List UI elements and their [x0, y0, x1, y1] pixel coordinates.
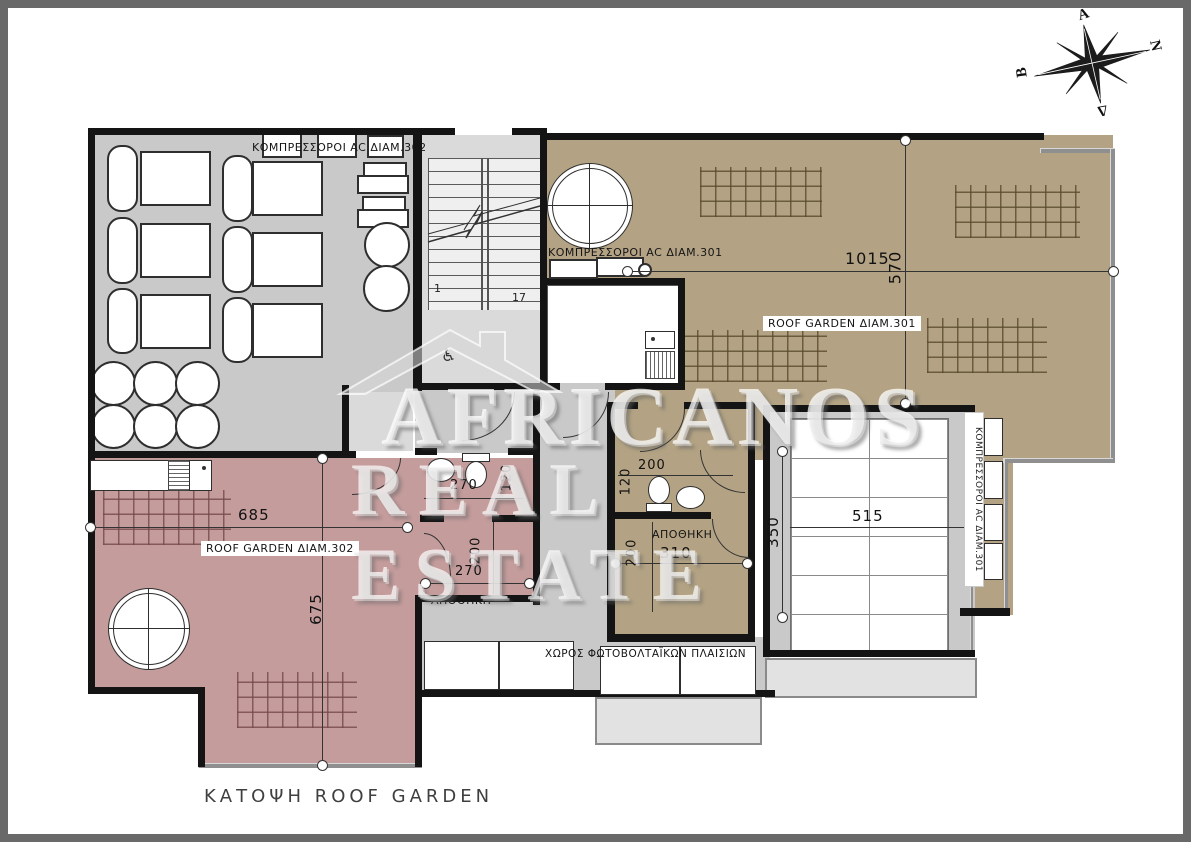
table: [252, 232, 323, 287]
sink: [676, 486, 705, 509]
label-roof-garden-301: ROOF GARDEN ΔΙΑΜ.301: [763, 316, 921, 331]
dim-line: [424, 583, 530, 584]
pergola-grid: [103, 490, 231, 545]
wall-segment: [415, 448, 437, 455]
ledge: [765, 658, 977, 698]
round-table: [133, 404, 178, 449]
dim-line: [89, 527, 408, 528]
dim-wc302-width: 270: [450, 478, 478, 493]
wall-segment: [540, 128, 547, 390]
terrace-corner-notch: [349, 392, 413, 451]
ladder: [645, 351, 675, 379]
tank: [364, 222, 410, 268]
dim-line: [790, 527, 970, 528]
dim-marker: [420, 578, 431, 589]
table: [252, 303, 323, 358]
parapet-edge: [198, 763, 422, 768]
wall-segment: [420, 515, 444, 522]
parapet-edge: [1003, 458, 1113, 463]
dim-marker: [85, 522, 96, 533]
round-table: [175, 404, 220, 449]
dim-marker: [317, 453, 328, 464]
door-opening: [455, 128, 512, 135]
lounger: [222, 297, 253, 363]
pergola-grid: [237, 672, 357, 728]
kitchen-sink: [189, 460, 212, 491]
dim-wc301-depth: 120: [618, 468, 633, 496]
wall-segment: [342, 385, 349, 458]
parapet-edge: [1004, 458, 1008, 613]
compass-south-letter: Ν: [1145, 38, 1164, 52]
counter: [90, 460, 170, 491]
wall-segment: [88, 128, 95, 458]
dim-line: [782, 450, 783, 617]
floor-plan-canvas: 1 17 ♿: [0, 0, 1191, 842]
ac-unit: [596, 257, 644, 277]
wall-segment: [413, 128, 422, 391]
door-opening: [560, 383, 605, 390]
pipe: [638, 263, 652, 277]
lounger: [107, 145, 138, 212]
stair-start-number: 1: [434, 282, 441, 295]
dim-line: [628, 271, 1115, 272]
dim-line: [493, 522, 494, 594]
table: [140, 151, 211, 206]
label-photovoltaic: ΧΩΡΟΣ ΦΩΤΟΒΟΛΤΑΪΚΩΝ ΠΛΑΙΣΙΩΝ: [545, 648, 746, 660]
wall-segment: [678, 278, 685, 390]
wall-segment: [545, 133, 1044, 140]
dim-marker: [402, 522, 413, 533]
wall-segment: [415, 598, 422, 767]
wheelchair-icon: ♿: [441, 346, 456, 366]
skylight-cross: [589, 163, 590, 249]
wall-segment: [88, 458, 95, 694]
skylight-302-inner: [113, 593, 185, 665]
compass-star-icon: [1021, 7, 1164, 124]
pergola-grid: [682, 330, 827, 382]
dim-panels-width: 515: [852, 507, 884, 525]
dim-marker: [900, 135, 911, 146]
dim-wc302-depth: 120: [499, 464, 514, 492]
pergola-grid: [927, 318, 1047, 373]
parapet-edge: [1110, 148, 1115, 463]
dim-rg302-depth: 675: [307, 593, 325, 625]
ac-unit: [984, 504, 1003, 541]
solar-panel-grid: [790, 418, 949, 655]
ac-unit: [357, 175, 409, 194]
stair-landing: [422, 310, 540, 383]
wall-segment: [88, 451, 356, 458]
stair-end-number: 17: [512, 291, 526, 304]
dim-line: [905, 140, 906, 405]
dim-line: [618, 475, 733, 476]
dim-storage302-width: 270: [455, 564, 483, 579]
ac-unit: [984, 418, 1003, 456]
label-compressors-302: ΚΟΜΠΡΕΣΣΟΡΟΙ AC ΔΙΑΜ.302: [252, 141, 427, 154]
wall-segment: [415, 383, 685, 390]
round-table: [133, 361, 178, 406]
machine-box: [645, 331, 675, 349]
dim-storage301-width: 310: [660, 544, 692, 562]
toilet-tank: [646, 503, 672, 512]
skylight-301-inner: [552, 168, 628, 244]
compass-rose: Α Β Ν Δ: [1021, 7, 1165, 132]
tank: [363, 265, 410, 312]
dim-marker: [317, 760, 328, 771]
dim-marker: [742, 558, 753, 569]
wall-segment: [607, 402, 615, 642]
dim-marker: [777, 446, 788, 457]
lounger: [222, 155, 253, 222]
parapet-edge: [1040, 148, 1115, 153]
round-table: [175, 361, 220, 406]
wall-segment: [547, 278, 685, 285]
toilet: [648, 476, 670, 504]
label-storage-302: ΑΠΟΘΗΚΗ: [431, 594, 491, 607]
dim-storage301-side: 350: [764, 516, 782, 548]
skylight-cross: [108, 628, 190, 629]
dim-rg302-width: 685: [238, 506, 270, 524]
label-roof-garden-302: ROOF GARDEN ΔΙΑΜ.302: [201, 541, 359, 556]
pv-panel: [424, 641, 499, 690]
pergola-grid: [700, 167, 822, 217]
ac-unit: [984, 543, 1003, 580]
door-opening: [638, 402, 684, 409]
dim-marker: [622, 266, 633, 277]
dim-rg301-depth: 570: [885, 251, 904, 285]
wall-segment: [607, 634, 755, 642]
lounger: [107, 288, 138, 354]
round-table: [91, 404, 136, 449]
ac-unit: [984, 461, 1003, 499]
dim-wc301-width: 200: [638, 458, 666, 473]
table: [140, 294, 211, 349]
label-compressors-301: ΚΟΜΠΡΕΣΣΟΡΟΙ AC ΔΙΑΜ.301: [548, 246, 723, 259]
dim-marker: [524, 578, 535, 589]
label-compressors-301-vertical: ΚΟΜΠΡΕΣΣΟΡΟΙ AC ΔΙΑΜ.301: [964, 412, 984, 587]
pergola-grid: [955, 185, 1080, 238]
dim-marker: [610, 558, 621, 569]
skylight-cross: [148, 588, 149, 670]
label-storage-301: ΑΠΟΘΗΚΗ: [652, 528, 712, 541]
wall-segment: [533, 390, 540, 605]
table: [252, 161, 323, 216]
wall-segment: [748, 402, 755, 642]
lounger: [222, 226, 253, 293]
wall-segment: [88, 687, 205, 694]
wall-segment: [508, 448, 540, 455]
table: [140, 223, 211, 278]
dim-marker: [777, 612, 788, 623]
wall-segment: [615, 512, 711, 519]
wall-segment: [763, 405, 975, 412]
skylight-cross: [547, 205, 633, 206]
ledge: [595, 697, 762, 745]
wall-segment: [960, 608, 1010, 616]
dim-rg301-width: 1015: [845, 249, 890, 268]
round-table: [91, 361, 136, 406]
wall-segment: [198, 687, 205, 767]
dim-marker: [1108, 266, 1119, 277]
dim-storage301-depth: 200: [624, 539, 639, 567]
dim-marker: [900, 398, 911, 409]
wall-segment: [763, 650, 975, 657]
dim-storage302-depth: 200: [468, 537, 483, 565]
ac-unit: [549, 259, 598, 279]
sink-drainboard: [168, 460, 190, 491]
page-title: ΚΑΤΟΨΗ ROOF GARDEN: [204, 786, 493, 807]
lounger: [107, 217, 138, 284]
dim-line: [424, 498, 524, 499]
wall-segment: [492, 515, 540, 522]
